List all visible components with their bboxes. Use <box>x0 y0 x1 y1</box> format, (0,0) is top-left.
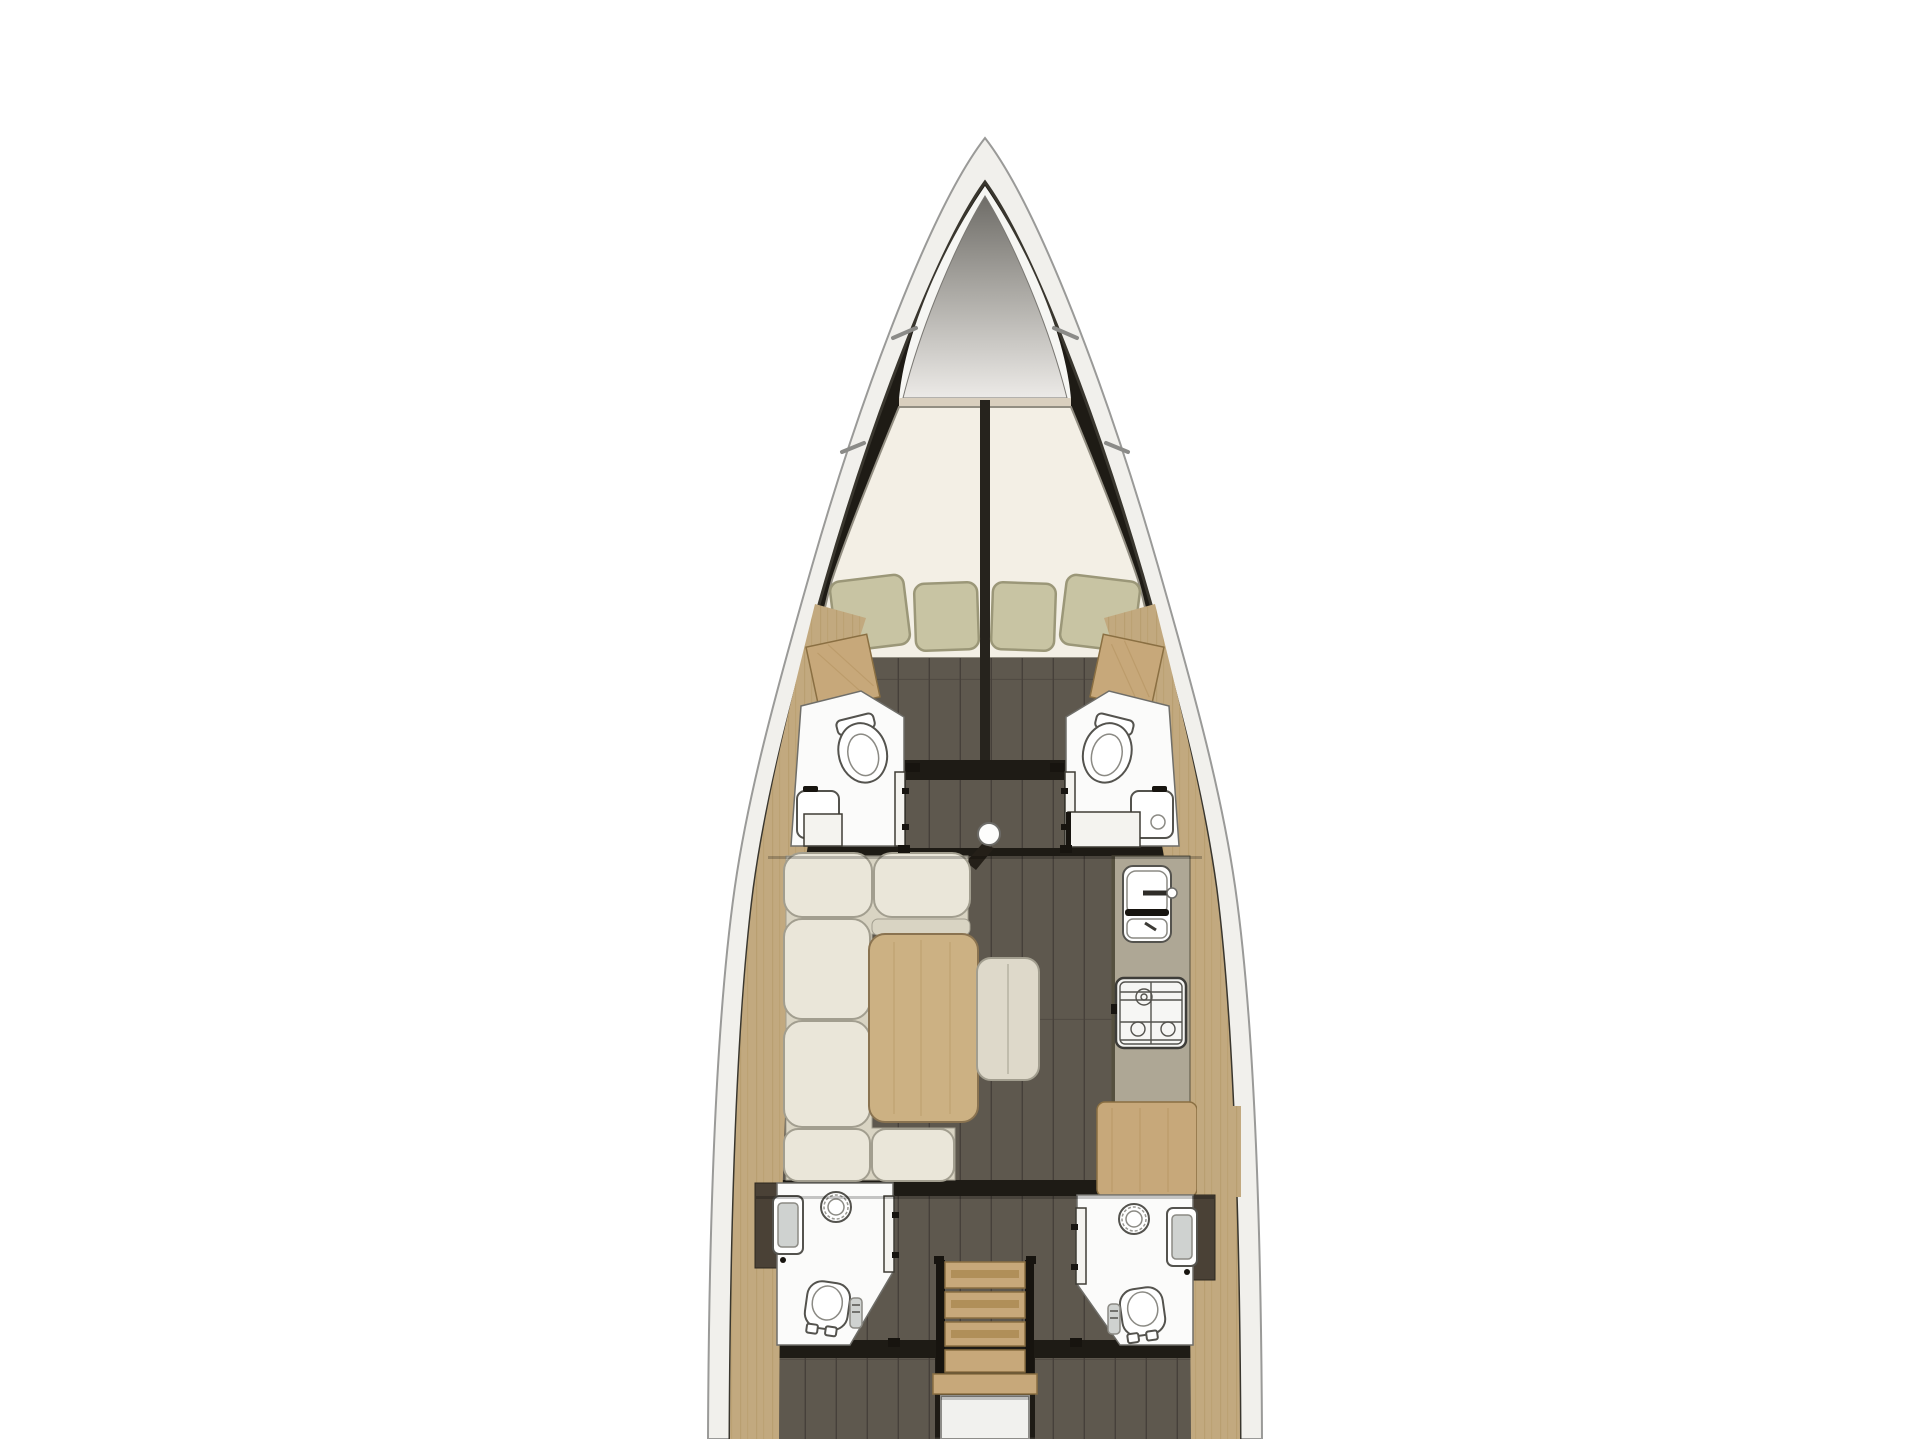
stair-tread-wide <box>933 1374 1037 1394</box>
hand-shower <box>850 1298 862 1328</box>
shower-pan <box>773 1196 803 1263</box>
door-edge <box>1066 812 1071 847</box>
shower-pan <box>1167 1208 1197 1275</box>
saloon-table <box>869 934 978 1122</box>
ottoman <box>977 958 1039 1080</box>
hand-shower <box>1108 1304 1120 1334</box>
port-head-door-open <box>804 814 842 846</box>
head-door <box>884 1196 894 1272</box>
engine-compartment <box>941 1396 1029 1439</box>
galley-sink <box>1123 866 1177 942</box>
pillow <box>914 582 979 651</box>
pillow <box>991 582 1056 651</box>
starboard-head-door-open <box>1068 812 1140 847</box>
galley <box>1111 856 1190 1102</box>
companionway-stairs <box>933 1260 1037 1439</box>
bulkhead-shadow <box>756 1196 1214 1199</box>
stove <box>1111 978 1186 1048</box>
floorplan-svg <box>0 0 1919 1439</box>
head-door <box>895 772 905 846</box>
bulkhead-shadow <box>768 856 1202 859</box>
stair-tread <box>945 1350 1025 1372</box>
yacht-floorplan-canvas: Sailing yacht interior floor plan, top v… <box>0 0 1919 1439</box>
head-door <box>1076 1208 1086 1284</box>
v-berth-center-divider <box>980 400 990 658</box>
forward-floor-divider <box>980 658 990 760</box>
chart-table <box>1097 1102 1241 1197</box>
round-sink <box>1119 1204 1149 1234</box>
